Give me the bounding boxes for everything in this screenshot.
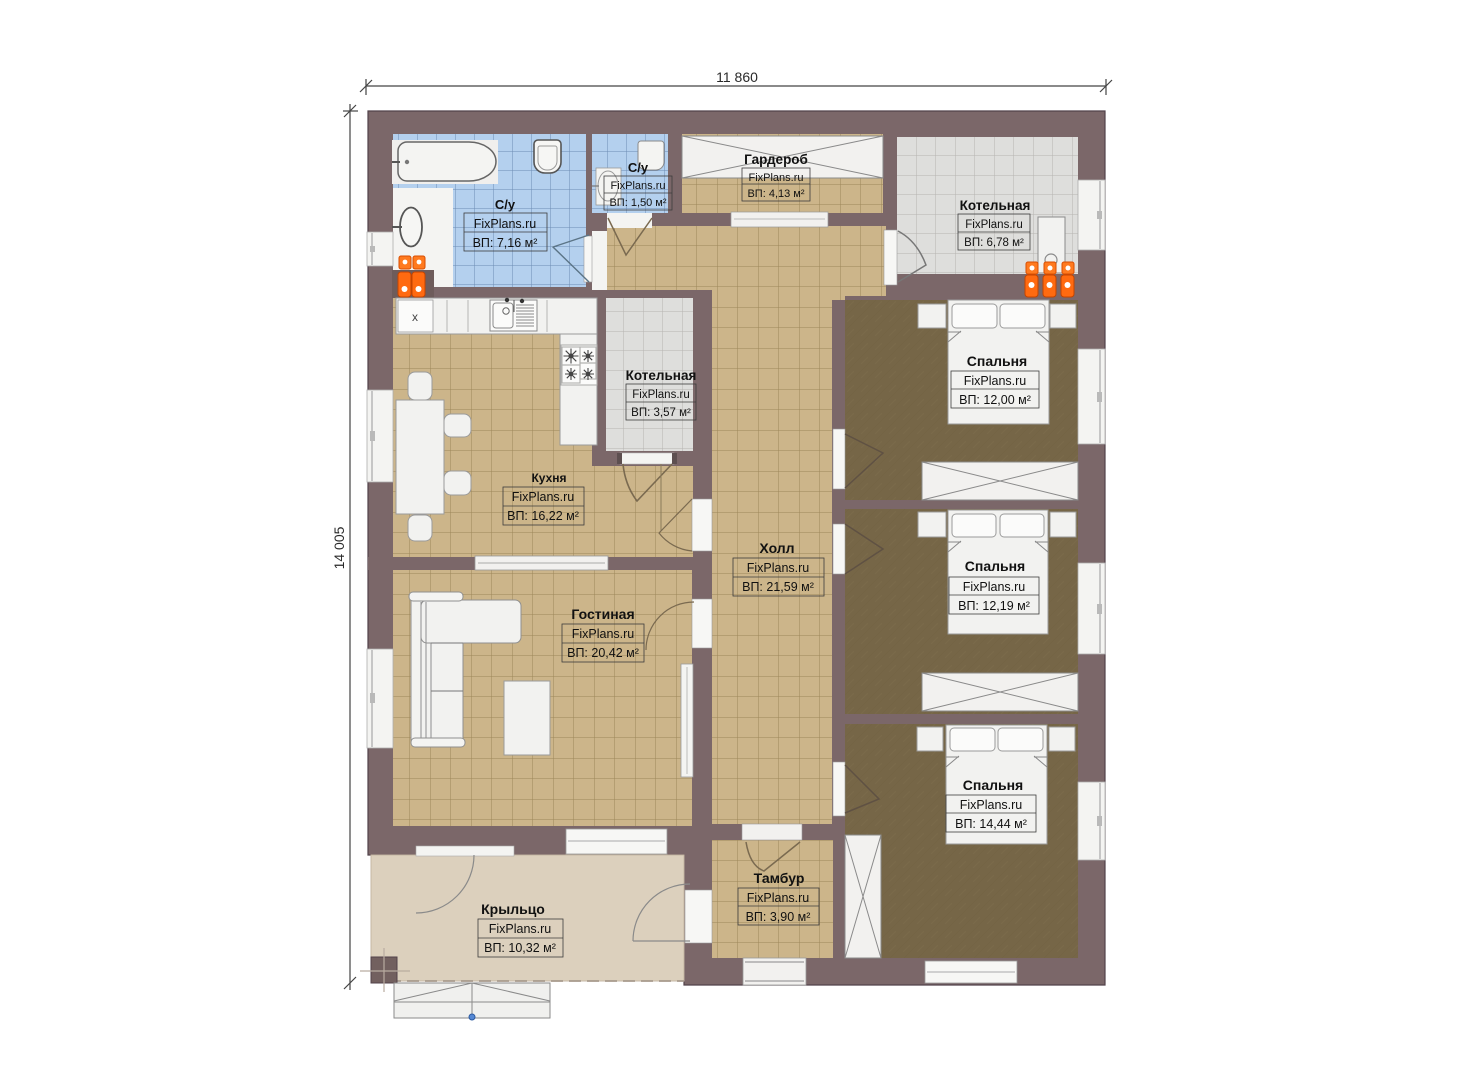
svg-text:С/у: С/у: [495, 197, 516, 212]
svg-text:Спальня: Спальня: [965, 558, 1025, 574]
svg-text:ВП: 1,50 м²: ВП: 1,50 м²: [609, 197, 666, 209]
svg-text:14 005: 14 005: [331, 526, 347, 569]
svg-text:Гардероб: Гардероб: [744, 152, 808, 167]
svg-text:ВП: 10,32 м²: ВП: 10,32 м²: [484, 941, 556, 955]
svg-text:FixPlans.ru: FixPlans.ru: [964, 374, 1027, 388]
svg-text:Гостиная: Гостиная: [571, 606, 634, 622]
svg-text:FixPlans.ru: FixPlans.ru: [512, 490, 575, 504]
svg-text:С/у: С/у: [628, 160, 649, 175]
svg-text:ВП: 3,57 м²: ВП: 3,57 м²: [631, 407, 691, 419]
svg-text:FixPlans.ru: FixPlans.ru: [632, 389, 690, 401]
svg-text:ВП: 7,16 м²: ВП: 7,16 м²: [473, 236, 538, 250]
svg-text:FixPlans.ru: FixPlans.ru: [965, 219, 1023, 231]
svg-text:ВП: 14,44 м²: ВП: 14,44 м²: [955, 817, 1027, 831]
svg-text:ВП: 12,00 м²: ВП: 12,00 м²: [959, 393, 1031, 407]
svg-text:Тамбур: Тамбур: [754, 870, 805, 886]
svg-text:Крыльцо: Крыльцо: [481, 901, 545, 917]
svg-text:FixPlans.ru: FixPlans.ru: [572, 627, 635, 641]
svg-text:11 860: 11 860: [716, 69, 758, 85]
svg-text:ВП: 4,13 м²: ВП: 4,13 м²: [747, 188, 804, 200]
svg-text:ВП: 12,19 м²: ВП: 12,19 м²: [958, 599, 1030, 613]
svg-text:ВП: 21,59 м²: ВП: 21,59 м²: [742, 580, 814, 594]
svg-text:FixPlans.ru: FixPlans.ru: [963, 580, 1026, 594]
svg-text:ВП: 3,90 м²: ВП: 3,90 м²: [746, 910, 811, 924]
svg-text:Котельная: Котельная: [626, 368, 697, 383]
svg-text:FixPlans.ru: FixPlans.ru: [748, 172, 803, 184]
svg-text:ВП: 16,22 м²: ВП: 16,22 м²: [507, 509, 579, 523]
svg-text:FixPlans.ru: FixPlans.ru: [489, 922, 552, 936]
svg-text:Кухня: Кухня: [531, 471, 566, 485]
svg-text:Холл: Холл: [759, 540, 794, 556]
svg-text:FixPlans.ru: FixPlans.ru: [474, 217, 537, 231]
svg-text:Спальня: Спальня: [967, 353, 1027, 369]
svg-text:FixPlans.ru: FixPlans.ru: [747, 891, 810, 905]
svg-text:Котельная: Котельная: [960, 198, 1031, 213]
svg-text:FixPlans.ru: FixPlans.ru: [610, 180, 665, 192]
svg-text:x: x: [412, 310, 418, 324]
svg-text:ВП: 20,42 м²: ВП: 20,42 м²: [567, 646, 639, 660]
svg-text:Спальня: Спальня: [963, 777, 1023, 793]
svg-text:ВП: 6,78 м²: ВП: 6,78 м²: [964, 237, 1024, 249]
svg-text:FixPlans.ru: FixPlans.ru: [960, 798, 1023, 812]
svg-text:FixPlans.ru: FixPlans.ru: [747, 561, 810, 575]
